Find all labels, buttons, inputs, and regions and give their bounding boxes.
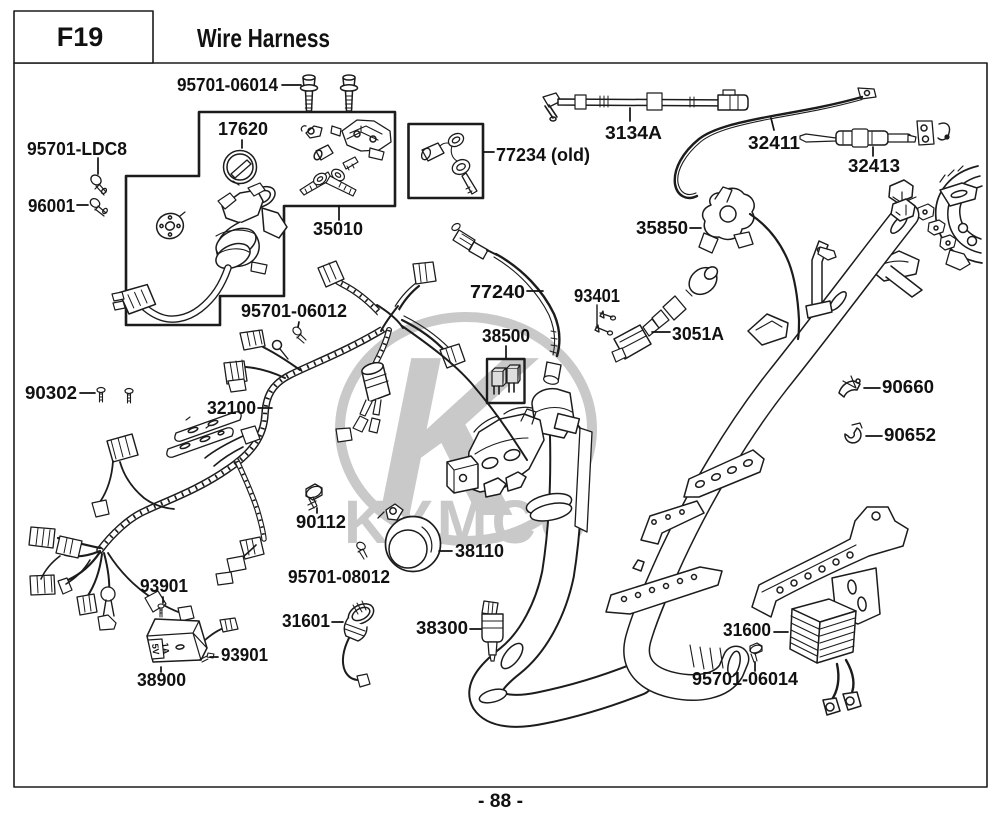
svg-text:- 88 -: - 88 - (478, 791, 523, 812)
svg-text:3051A: 3051A (672, 324, 724, 344)
svg-text:95701-06012: 95701-06012 (241, 301, 347, 321)
svg-text:F19: F19 (57, 22, 104, 52)
svg-text:38110: 38110 (455, 541, 504, 561)
svg-text:95701-06014: 95701-06014 (692, 669, 798, 689)
svg-text:Wire Harness: Wire Harness (197, 23, 330, 53)
svg-text:96001: 96001 (28, 196, 75, 216)
svg-text:32100: 32100 (207, 398, 256, 418)
svg-text:90652: 90652 (884, 425, 936, 445)
svg-text:93901: 93901 (140, 576, 188, 596)
svg-text:95701-06014: 95701-06014 (177, 75, 278, 95)
svg-text:38300: 38300 (416, 618, 468, 638)
svg-text:32411: 32411 (748, 133, 800, 153)
svg-text:38500: 38500 (482, 326, 530, 346)
svg-text:93401: 93401 (574, 286, 620, 306)
svg-text:3134A: 3134A (605, 123, 662, 143)
svg-text:95701-LDC8: 95701-LDC8 (27, 139, 127, 159)
svg-text:35850: 35850 (636, 218, 688, 238)
svg-text:31600: 31600 (723, 620, 771, 640)
svg-text:93901: 93901 (221, 645, 268, 665)
svg-text:5V: 5V (150, 643, 161, 655)
svg-text:90660: 90660 (882, 377, 934, 397)
svg-text:38900: 38900 (137, 670, 186, 690)
svg-text:90112: 90112 (296, 512, 346, 532)
svg-text:35010: 35010 (313, 219, 363, 239)
svg-text:95701-08012: 95701-08012 (288, 567, 390, 587)
svg-text:32413: 32413 (848, 156, 900, 176)
svg-text:77234 (old): 77234 (old) (496, 145, 590, 165)
svg-text:90302: 90302 (25, 383, 77, 403)
svg-text:1A: 1A (160, 642, 171, 655)
svg-text:77240: 77240 (470, 282, 525, 302)
svg-text:31601: 31601 (282, 611, 330, 631)
svg-text:17620: 17620 (218, 119, 268, 139)
